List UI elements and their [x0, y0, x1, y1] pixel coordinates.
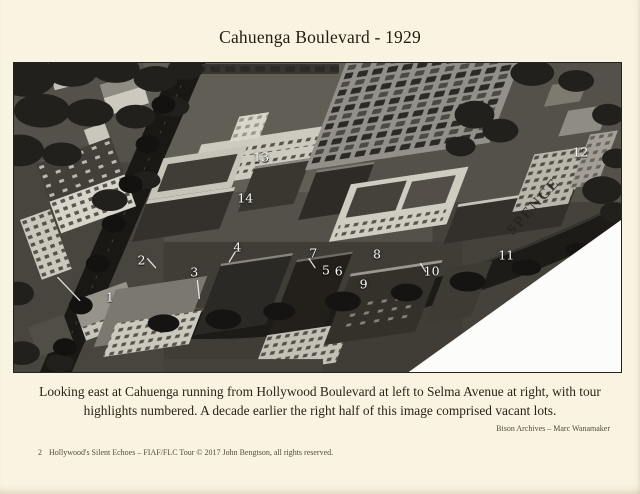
page-title: Cahuenga Boulevard - 1929	[0, 27, 640, 48]
aerial-photo: 1234567891011121314 SPENCE	[13, 62, 622, 373]
document-page: Cahuenga Boulevard - 1929	[0, 0, 640, 494]
photo-marker-2: 2	[137, 252, 145, 267]
photo-marker-9: 9	[360, 276, 368, 291]
photo-marker-10: 10	[424, 263, 440, 278]
photo-marker-14: 14	[237, 191, 253, 206]
page-footer: 2Hollywood's Silent Echoes – FIAF/FLC To…	[38, 448, 333, 457]
photo-marker-7: 7	[309, 245, 317, 260]
photo-marker-3: 3	[190, 264, 198, 279]
photo-marker-11: 11	[498, 247, 514, 262]
photo-marker-4: 4	[233, 239, 241, 254]
photo-marker-8: 8	[373, 246, 381, 261]
page-number: 2	[38, 448, 42, 457]
photo-marker-5: 5	[322, 262, 330, 277]
photo-marker-1: 1	[106, 289, 114, 304]
photo-caption: Looking east at Cahuenga running from Ho…	[20, 382, 620, 421]
photo-credit: Bison Archives – Marc Wanamaker	[496, 424, 610, 433]
photo-marker-12: 12	[572, 145, 588, 160]
photo-marker-13: 13	[253, 150, 269, 165]
footer-text: Hollywood's Silent Echoes – FIAF/FLC Tou…	[49, 448, 333, 457]
photo-marker-6: 6	[335, 263, 343, 278]
